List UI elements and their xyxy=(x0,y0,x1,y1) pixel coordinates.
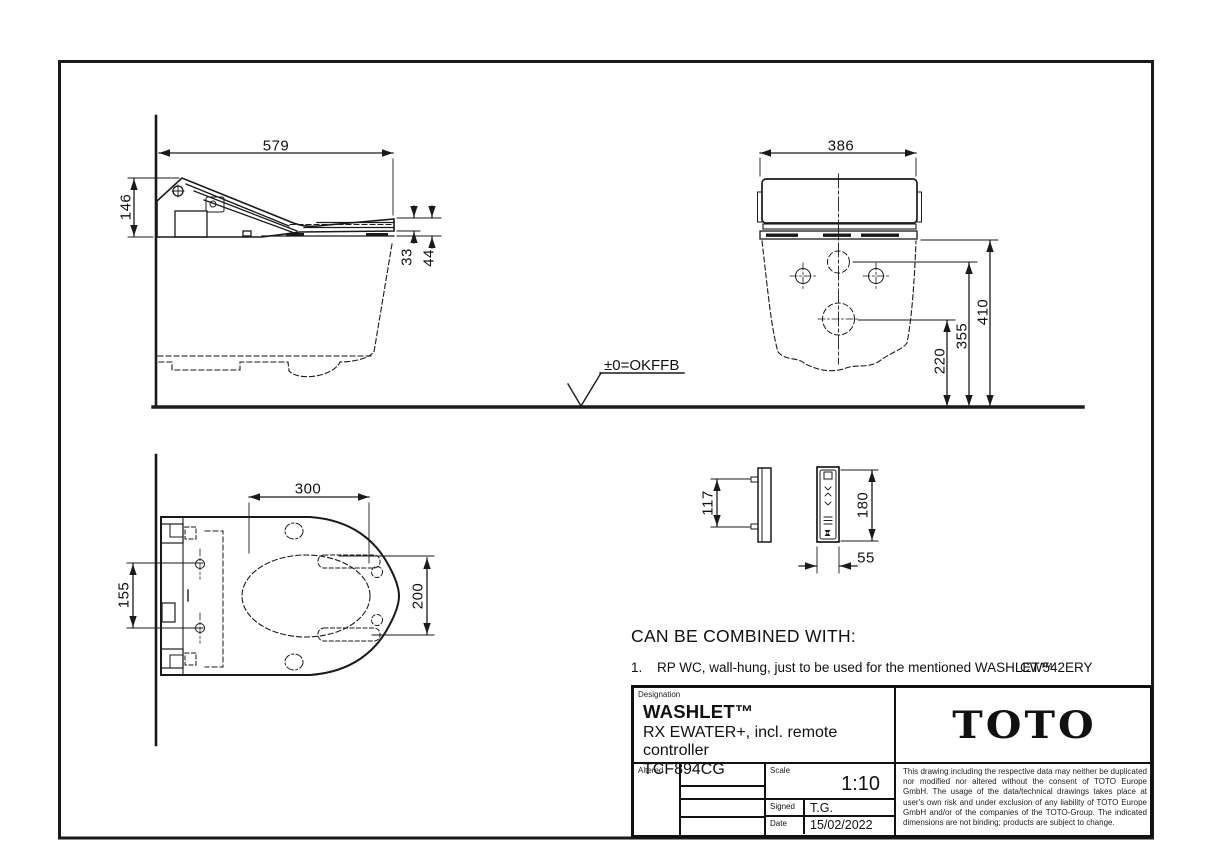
item-code: CW542ERY xyxy=(1020,660,1093,675)
combined-with-heading: CAN BE COMBINED WITH: xyxy=(631,626,1101,647)
dim-height-355: 355 xyxy=(955,323,970,350)
remote-side-view xyxy=(711,468,771,542)
dim-top-hole-pitch: 155 xyxy=(117,582,132,609)
altered-label: Altered xyxy=(634,764,679,775)
signed-value: T.G. xyxy=(805,800,894,815)
dim-seat-base: 44 xyxy=(422,249,437,267)
dim-side-height: 146 xyxy=(119,194,134,221)
dim-side-width: 579 xyxy=(263,139,290,154)
revision-row xyxy=(681,787,764,800)
dim-height-220: 220 xyxy=(933,348,948,375)
scale-cell: Scale 1:10 xyxy=(766,764,894,800)
dim-top-depth: 300 xyxy=(295,482,322,497)
dim-height-410: 410 xyxy=(976,299,991,326)
floor-level-label: ±0=OKFFB xyxy=(604,357,679,374)
dim-front-width: 386 xyxy=(828,139,855,154)
designation-label: Designation xyxy=(634,688,894,699)
top-view xyxy=(127,497,434,675)
toto-logo: TOTO xyxy=(952,703,1096,747)
dim-top-opening: 200 xyxy=(411,583,426,610)
brand-cell: TOTO xyxy=(896,688,1153,764)
altered-cell: Altered xyxy=(634,764,681,835)
side-view xyxy=(128,153,441,377)
designation-cell: Designation WASHLET™ RX EWATER+, incl. r… xyxy=(634,688,896,764)
revision-rows xyxy=(681,764,766,835)
signed-label: Signed xyxy=(766,800,805,815)
product-name: WASHLET™ xyxy=(643,701,894,723)
remote-buttons-icon xyxy=(824,487,832,536)
scale-signed-date-block: Scale 1:10 Signed T.G. Date 15/02/2022 xyxy=(766,764,896,835)
date-value: 15/02/2022 xyxy=(805,817,894,834)
dim-remote-pin-pitch: 117 xyxy=(701,490,716,515)
item-text: RP WC, wall-hung, just to be used for th… xyxy=(657,660,1053,675)
date-row: Date 15/02/2022 xyxy=(766,817,894,834)
revision-row xyxy=(681,764,764,787)
dim-remote-height: 180 xyxy=(856,492,871,519)
scale-value: 1:10 xyxy=(841,773,880,796)
combined-with-item: 1.RP WC, wall-hung, just to be used for … xyxy=(631,660,1101,675)
revision-row xyxy=(681,800,764,818)
bowl-outline-front xyxy=(762,241,916,371)
bowl-outline-side xyxy=(158,244,392,377)
front-view xyxy=(758,153,999,406)
technical-drawing-sheet: 579 146 33 44 386 410 355 220 ±0=OKFFB 3… xyxy=(0,0,1214,859)
mounting-hole-icon xyxy=(790,263,816,289)
disclaimer-text: This drawing including the respective da… xyxy=(896,764,1153,835)
combined-with-note: CAN BE COMBINED WITH: 1.RP WC, wall-hung… xyxy=(631,626,1101,675)
title-block: Designation WASHLET™ RX EWATER+, incl. r… xyxy=(631,685,1153,838)
item-number: 1. xyxy=(631,660,657,675)
level-mark-icon xyxy=(568,373,684,406)
date-label: Date xyxy=(766,817,805,834)
dim-remote-width: 55 xyxy=(857,551,875,566)
signed-row: Signed T.G. xyxy=(766,800,894,817)
mounting-hole-icon xyxy=(863,263,889,289)
product-description: RX EWATER+, incl. remote controller xyxy=(643,724,894,760)
dim-seat-thickness: 33 xyxy=(400,248,415,266)
